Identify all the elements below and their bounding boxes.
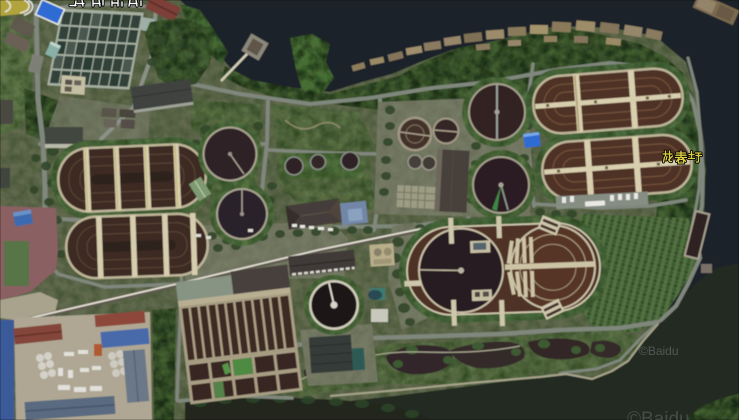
svg-text:©Baidu: ©Baidu [627,409,690,420]
svg-text:©Baidu: ©Baidu [639,344,679,358]
